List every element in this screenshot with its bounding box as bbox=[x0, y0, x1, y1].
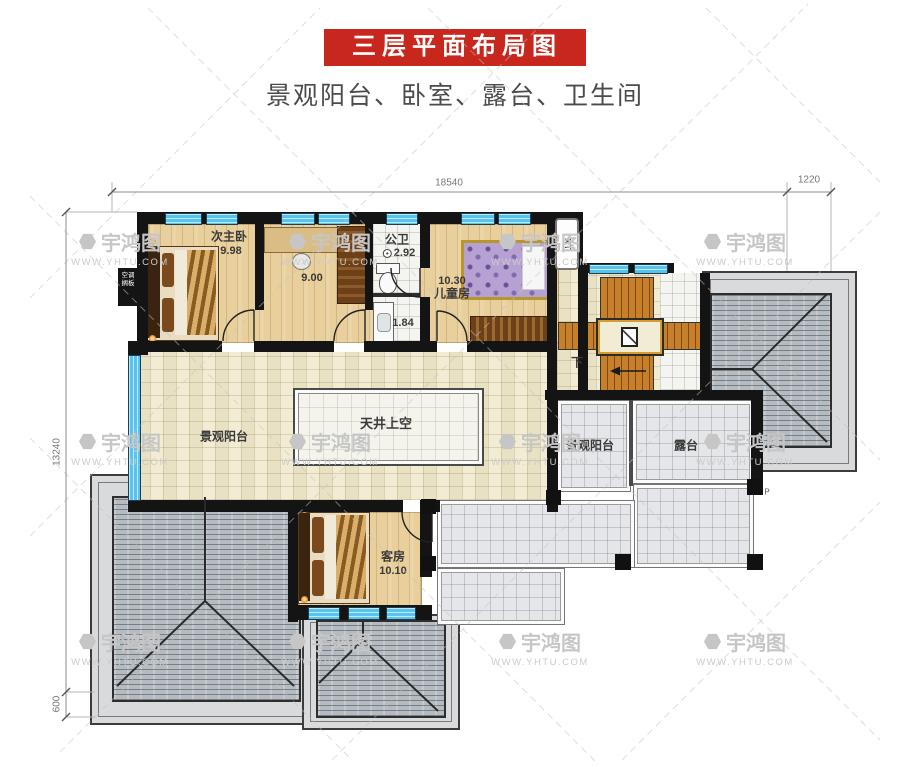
bed-blanket bbox=[187, 250, 216, 335]
room-label-kids: 儿童房 bbox=[434, 287, 470, 300]
floor-plan-page: 三层平面布局图 景观阳台、卧室、露台、卫生间 bbox=[0, 0, 910, 767]
open-terrace-lower bbox=[437, 568, 565, 625]
parapet-post bbox=[615, 554, 631, 570]
window bbox=[386, 607, 416, 620]
room-label-terrace: 露台 bbox=[674, 439, 698, 452]
window bbox=[318, 213, 350, 225]
watermark: 宇鸿图WWW.YHTU.COM bbox=[465, 627, 615, 668]
wall-left-exterior bbox=[137, 212, 148, 355]
room-label-atrium: 天井上空 bbox=[360, 417, 412, 431]
bed-pillow bbox=[312, 560, 324, 596]
window-post bbox=[128, 341, 139, 355]
wall-dressing-bath bbox=[365, 224, 373, 310]
room-label-master: 次主卧 bbox=[211, 230, 247, 243]
stair-center-icon bbox=[621, 327, 638, 347]
wall-stair-left bbox=[578, 263, 588, 400]
bed-blanket bbox=[336, 515, 366, 599]
wall-bath-kids-upper bbox=[420, 212, 430, 268]
room-area-master: 9.98 bbox=[220, 245, 241, 257]
parapet-post bbox=[546, 490, 561, 505]
wall-master-dressing bbox=[255, 224, 264, 310]
room-label-balcony-left: 景观阳台 bbox=[200, 430, 248, 443]
title-banner: 三层平面布局图 bbox=[324, 29, 586, 66]
page-subtitle: 景观阳台、卧室、露台、卫生间 bbox=[0, 76, 910, 112]
dressing-stool bbox=[292, 253, 311, 270]
window bbox=[386, 213, 418, 225]
basin bbox=[377, 313, 391, 332]
wall-stair-right bbox=[700, 273, 710, 395]
wardrobe bbox=[337, 226, 366, 304]
drain-p-label: P bbox=[764, 489, 769, 498]
stair-flight-upper bbox=[600, 277, 654, 320]
wall-guest-left bbox=[288, 500, 298, 622]
ac-unit-label: KT bbox=[562, 238, 571, 251]
room-area-bath: 2.92 bbox=[383, 247, 415, 259]
dim-height-main: 13240 bbox=[52, 438, 63, 466]
watermark-site: WWW.YHTU.COM bbox=[670, 657, 820, 668]
parapet-post bbox=[747, 479, 763, 495]
stair-down-label: 下 bbox=[571, 356, 583, 369]
parapet-post bbox=[421, 556, 436, 571]
wall-bedrooms-bottom bbox=[148, 341, 222, 352]
roof-bottom-middle bbox=[316, 620, 446, 718]
toilet bbox=[376, 263, 398, 293]
room-area-guest: 10.10 bbox=[379, 565, 407, 577]
bed-pillow bbox=[162, 253, 174, 287]
window bbox=[348, 607, 380, 620]
bedside-lamp bbox=[149, 238, 156, 245]
bed-pillow bbox=[312, 517, 324, 553]
parapet-post bbox=[747, 554, 763, 570]
window bbox=[128, 355, 141, 501]
stair-wing-right bbox=[660, 322, 702, 350]
kids-pillow bbox=[522, 246, 545, 290]
watermark-site: WWW.YHTU.COM bbox=[465, 657, 615, 668]
brand-logo-icon bbox=[499, 633, 516, 650]
wall-balcony-right bbox=[547, 341, 557, 400]
bed-headboard bbox=[148, 247, 160, 338]
room-area-kids: 10.30 bbox=[438, 275, 466, 287]
terrace-divider-wall bbox=[629, 400, 633, 486]
room-label-bath: 公卫 bbox=[385, 233, 409, 246]
window bbox=[281, 213, 315, 225]
room-area-dressing: 9.00 bbox=[301, 272, 322, 284]
window bbox=[308, 607, 340, 620]
brand-logo-icon bbox=[79, 233, 96, 250]
wall-bath-divider bbox=[373, 293, 420, 297]
roof-bottom-left bbox=[112, 496, 301, 702]
brand-logo-icon bbox=[79, 433, 96, 450]
wall-bedrooms-bottom bbox=[254, 341, 334, 352]
ac-platform-label: 空调搁板 bbox=[119, 272, 137, 288]
window bbox=[461, 213, 495, 225]
parapet-post bbox=[421, 499, 436, 514]
stair-flight-lower bbox=[600, 352, 654, 394]
wall-bath-kids-lower bbox=[420, 297, 430, 341]
wash-basin bbox=[373, 302, 394, 342]
wall-terrace-top bbox=[545, 390, 763, 400]
room-area-wash: 1.84 bbox=[392, 317, 413, 329]
room-label-guest: 客房 bbox=[381, 550, 405, 563]
bed-pillow bbox=[162, 298, 174, 332]
watermark-brand: 宇鸿图 bbox=[521, 627, 581, 656]
brand-logo-icon bbox=[704, 233, 721, 250]
room-label-balcony-right: 景观阳台 bbox=[566, 439, 614, 452]
wall-terrace-right bbox=[751, 393, 763, 492]
dim-width-main: 18540 bbox=[435, 178, 463, 189]
watermark-brand: 宇鸿图 bbox=[726, 627, 786, 656]
window bbox=[165, 213, 202, 225]
open-terrace-right bbox=[633, 484, 754, 568]
ac-outdoor-unit: KT bbox=[555, 218, 579, 270]
dim-width-right: 1220 bbox=[798, 175, 820, 186]
kids-bed bbox=[461, 240, 553, 300]
drain-icon bbox=[383, 249, 392, 258]
kids-wardrobe bbox=[470, 316, 550, 343]
window bbox=[589, 264, 629, 274]
dim-height-bottom: 600 bbox=[52, 696, 63, 713]
bed-headboard bbox=[299, 513, 310, 601]
wall-bedrooms-bottom bbox=[467, 341, 557, 352]
guest-bed bbox=[298, 512, 370, 604]
wall-bedrooms-bottom bbox=[364, 341, 437, 352]
master-bed bbox=[147, 246, 219, 341]
toilet-bowl bbox=[379, 272, 397, 294]
open-terrace-middle bbox=[437, 500, 635, 568]
bed-sheet bbox=[175, 250, 187, 335]
window bbox=[206, 213, 238, 225]
window bbox=[634, 264, 668, 274]
watermark: 宇鸿图WWW.YHTU.COM bbox=[670, 227, 820, 268]
bedside-lamp bbox=[301, 596, 308, 603]
wall-balcony-bottom bbox=[137, 500, 403, 512]
window bbox=[498, 213, 531, 225]
brand-logo-icon bbox=[704, 633, 721, 650]
watermark-site: WWW.YHTU.COM bbox=[670, 257, 820, 268]
bed-sheet bbox=[325, 515, 336, 599]
page-title: 三层平面布局图 bbox=[352, 33, 562, 60]
dressing-table bbox=[264, 227, 342, 253]
watermark-brand: 宇鸿图 bbox=[726, 227, 786, 256]
watermark: 宇鸿图WWW.YHTU.COM bbox=[670, 627, 820, 668]
